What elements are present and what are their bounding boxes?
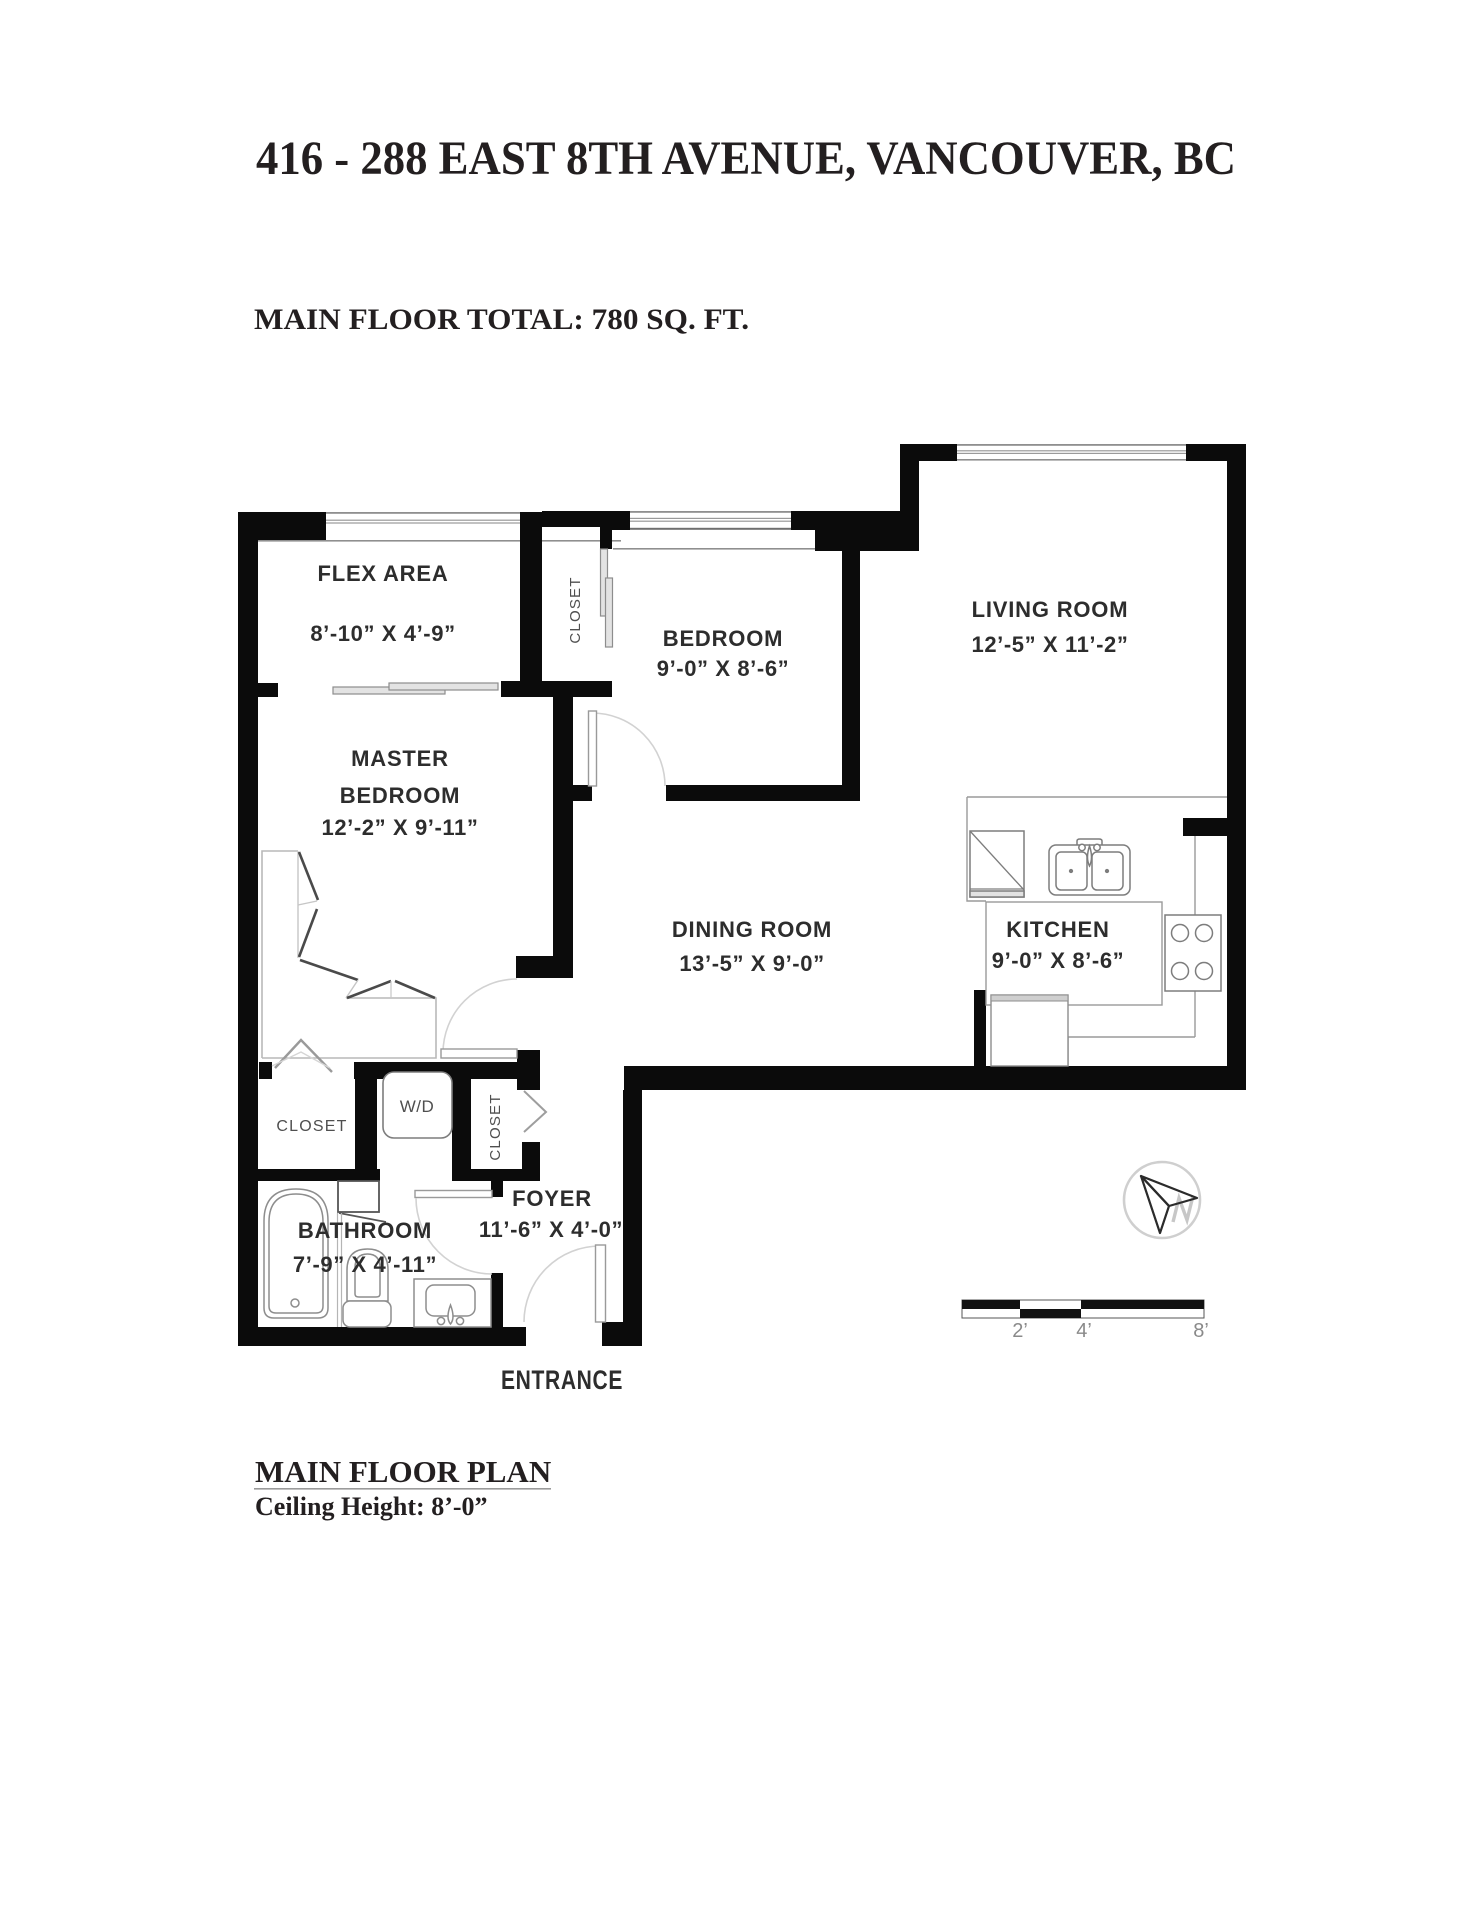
svg-text:W/D: W/D	[400, 1097, 435, 1116]
svg-text:FLEX AREA: FLEX AREA	[317, 561, 448, 586]
svg-text:8’: 8’	[1193, 1320, 1209, 1342]
svg-text:DINING ROOM: DINING ROOM	[672, 917, 832, 942]
svg-text:13’-5” X 9’-0”: 13’-5” X 9’-0”	[679, 951, 824, 976]
svg-text:7’-9” X 4’-11”: 7’-9” X 4’-11”	[293, 1252, 437, 1277]
svg-text:KITCHEN: KITCHEN	[1006, 917, 1109, 942]
svg-text:CLOSET: CLOSET	[567, 576, 584, 643]
svg-text:BATHROOM: BATHROOM	[298, 1218, 432, 1243]
svg-text:BEDROOM: BEDROOM	[340, 783, 461, 808]
svg-text:12’-5” X 11’-2”: 12’-5” X 11’-2”	[972, 632, 1129, 657]
svg-text:4’: 4’	[1076, 1320, 1092, 1342]
svg-text:Ceiling Height: 8’-0”: Ceiling Height: 8’-0”	[255, 1492, 488, 1521]
svg-text:MAIN FLOOR PLAN: MAIN FLOOR PLAN	[255, 1454, 551, 1489]
svg-text:CLOSET: CLOSET	[487, 1093, 504, 1160]
svg-text:8’-10” X 4’-9”: 8’-10” X 4’-9”	[310, 621, 455, 646]
svg-text:9’-0” X 8’-6”: 9’-0” X 8’-6”	[657, 656, 790, 681]
svg-text:FOYER: FOYER	[512, 1186, 592, 1211]
svg-text:ENTRANCE: ENTRANCE	[501, 1365, 623, 1395]
svg-text:2’: 2’	[1012, 1320, 1028, 1342]
svg-text:CLOSET: CLOSET	[276, 1118, 347, 1135]
svg-text:11’-6” X 4’-0”: 11’-6” X 4’-0”	[479, 1217, 623, 1242]
svg-text:BEDROOM: BEDROOM	[663, 626, 784, 651]
svg-text:416 - 288 EAST 8TH AVENUE, VAN: 416 - 288 EAST 8TH AVENUE, VANCOUVER, BC	[256, 132, 1236, 185]
svg-text:12’-2” X 9’-11”: 12’-2” X 9’-11”	[322, 815, 479, 840]
svg-text:MASTER: MASTER	[351, 746, 449, 771]
svg-text:LIVING ROOM: LIVING ROOM	[972, 597, 1129, 622]
svg-text:MAIN FLOOR TOTAL: 780 SQ. FT.: MAIN FLOOR TOTAL: 780 SQ. FT.	[254, 303, 749, 336]
svg-text:9’-0” X 8’-6”: 9’-0” X 8’-6”	[992, 948, 1125, 973]
